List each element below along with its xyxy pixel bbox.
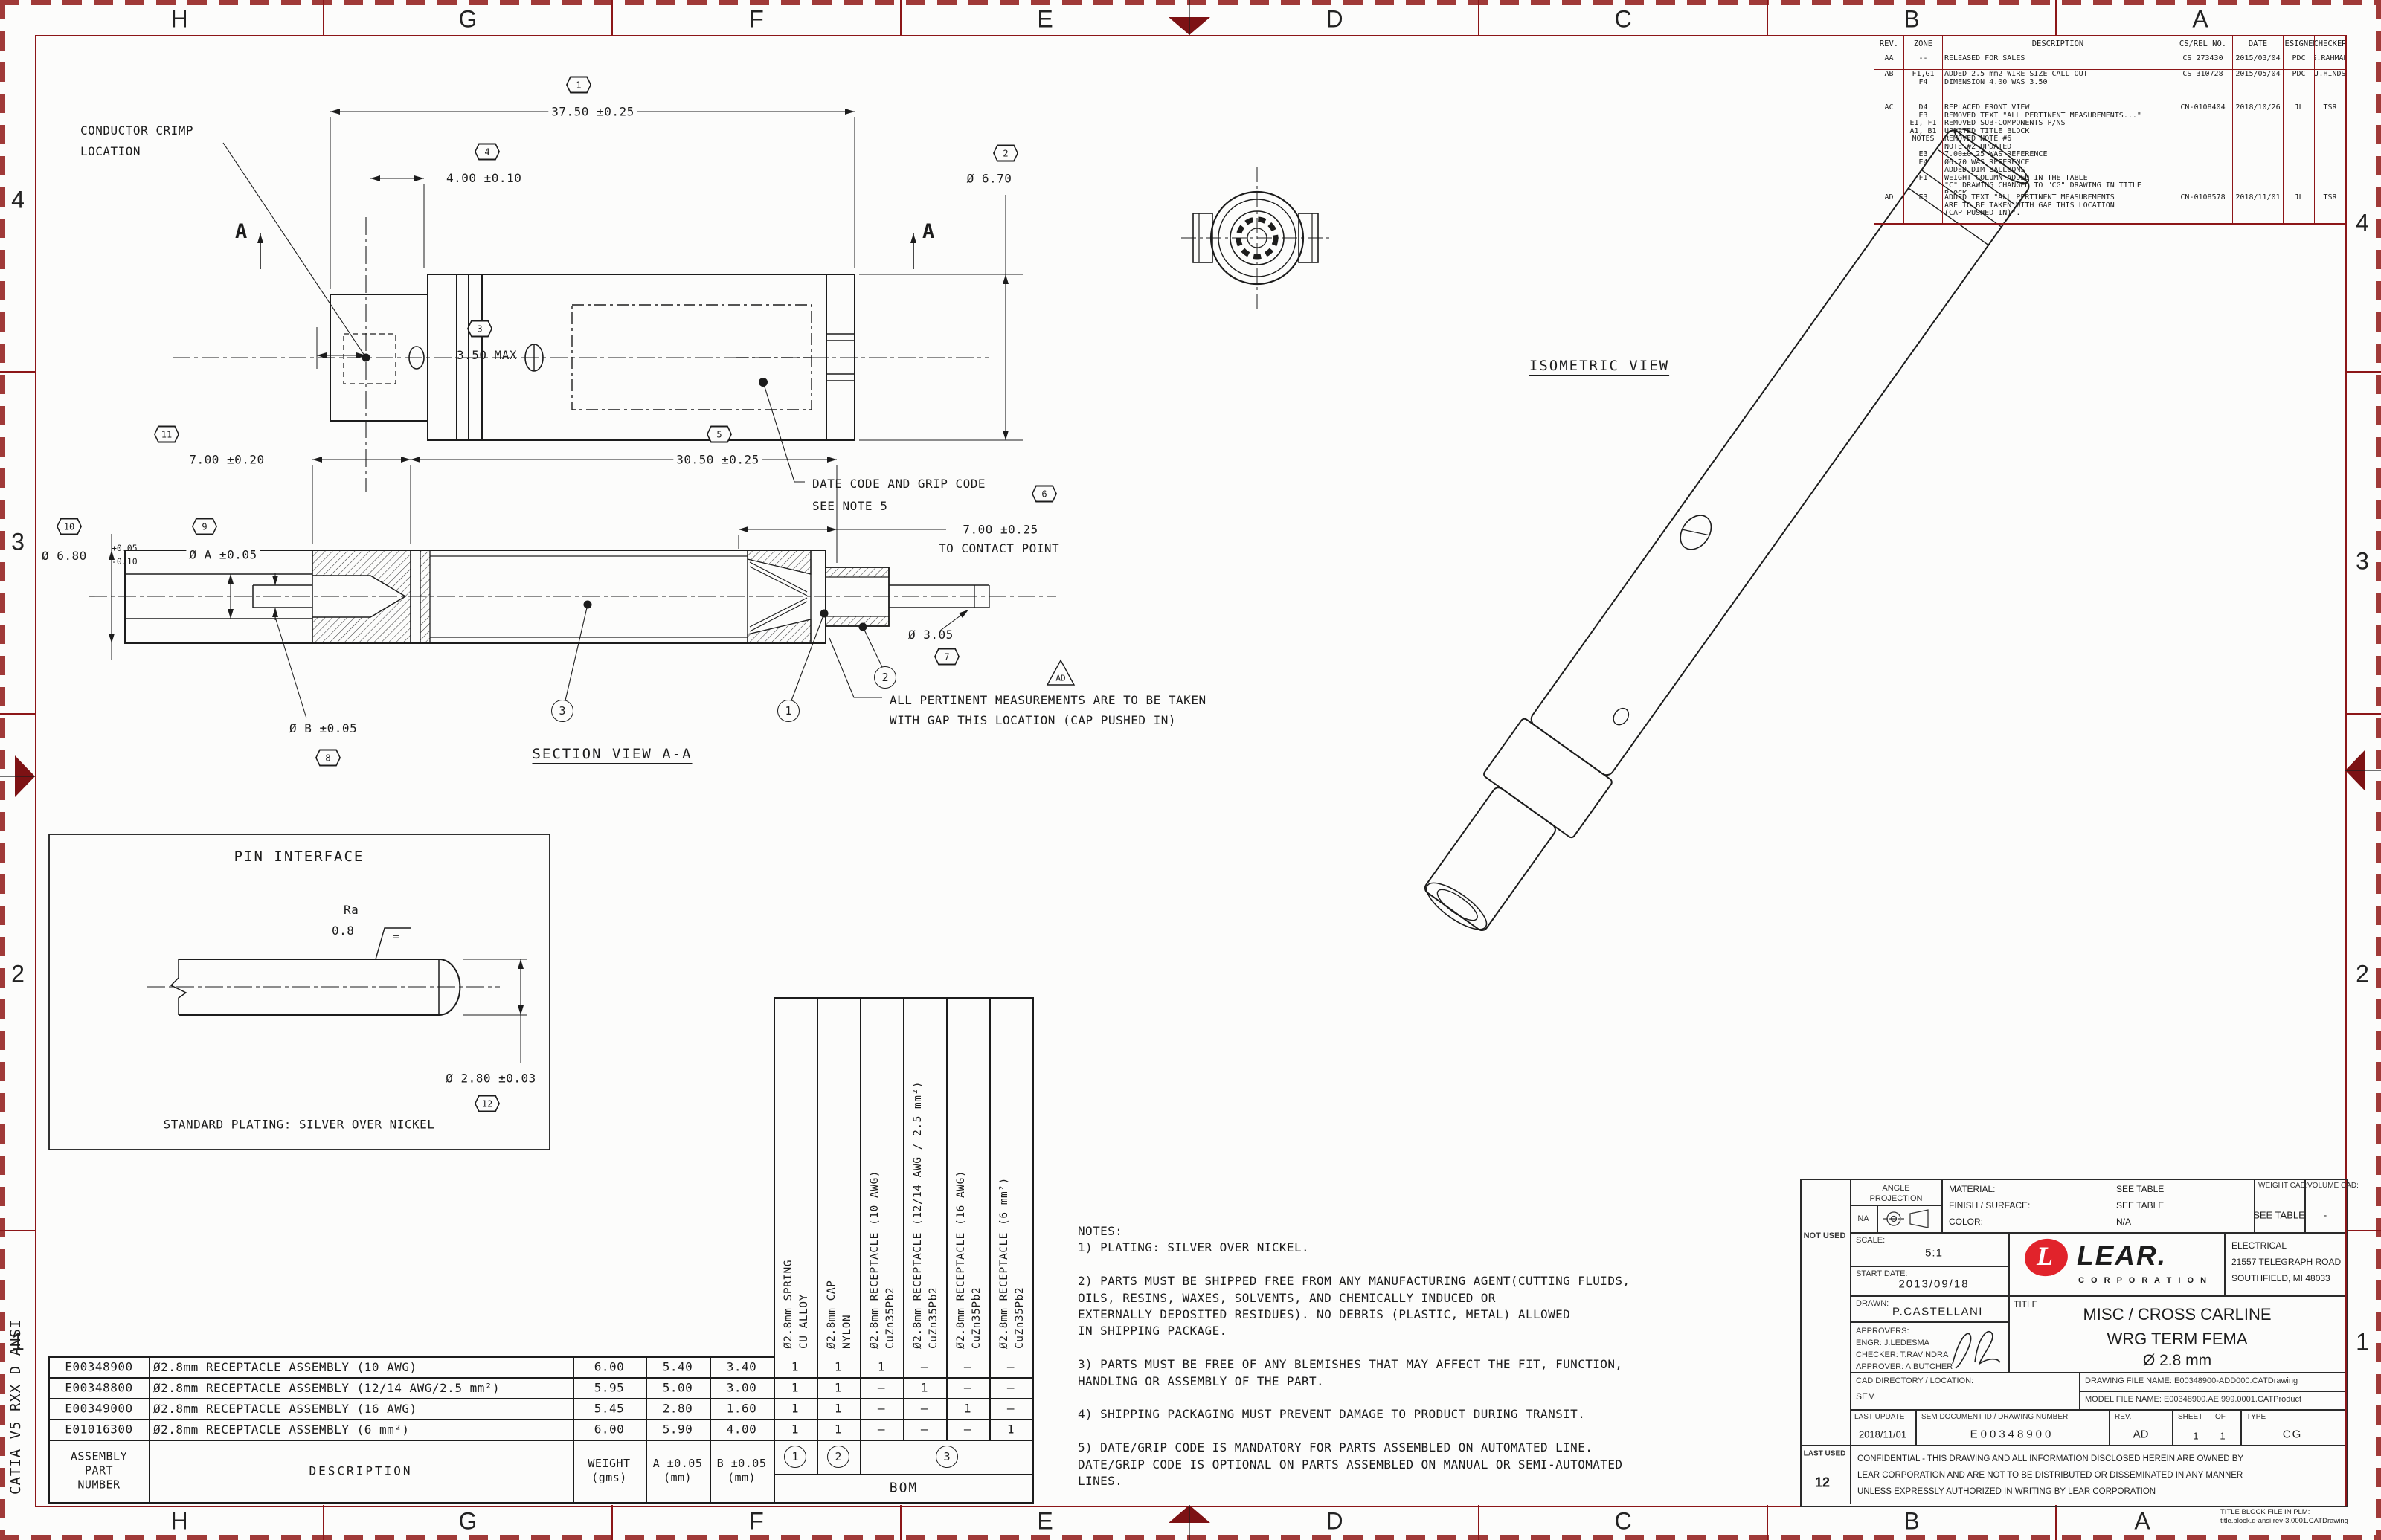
tb-line (1850, 1321, 2008, 1323)
sem-doc-id-label: SEM DOCUMENT ID / DRAWING NUMBER (1921, 1413, 2068, 1421)
bom-component-header-1: Ø2.8mm SPRING CU ALLOY (781, 1002, 815, 1349)
rev-cell: PDC (2284, 70, 2315, 103)
revision-table: REV. ZONE DESCRIPTION CS/REL NO. DATE DE… (1874, 35, 2347, 225)
rev-header: DATE (2233, 35, 2284, 54)
bom-part-desc: Ø2.8mm RECEPTACLE ASSEMBLY (6 mm²) (153, 1423, 410, 1437)
section-view-label: SECTION VIEW A-A (532, 746, 692, 762)
angle-na: NA (1857, 1214, 1869, 1223)
bom-line (48, 1502, 1034, 1504)
balloon-1: 1 (566, 77, 591, 94)
bom-line (817, 997, 818, 1474)
tb-line (1941, 1179, 1943, 1232)
isometric-view (1404, 116, 2043, 949)
lear-logo-l: L (2037, 1240, 2053, 1272)
tb-line (1850, 1266, 2008, 1267)
bom-balloon-3: 3 (936, 1446, 958, 1468)
item-balloon-2: 2 (874, 666, 896, 689)
tb-line (1850, 1295, 2345, 1297)
last-update-value: 2018/11/01 (1859, 1429, 1906, 1440)
bom-line (149, 1356, 150, 1504)
date-code-note: DATE CODE AND GRIP CODE SEE NOTE 5 (812, 473, 986, 518)
bom-line (860, 997, 861, 1474)
balloon-4: 4 (475, 144, 500, 161)
company-address: ELECTRICAL 21557 TELEGRAPH ROAD SOUTHFIE… (2231, 1237, 2341, 1286)
title-label: TITLE (2014, 1299, 2038, 1309)
bom-part-desc: Ø2.8mm RECEPTACLE ASSEMBLY (16 AWG) (153, 1402, 417, 1416)
bom-qty: – (921, 1402, 928, 1416)
weight-cad-label: WEIGHT CAD: (2258, 1182, 2307, 1190)
pertinent-note: ALL PERTINENT MEASUREMENTS ARE TO BE TAK… (890, 690, 1206, 730)
bom-qty: – (1007, 1360, 1015, 1374)
volume-cad-label: VOLUME CAD: (2307, 1182, 2359, 1190)
tb-line (1850, 1179, 1851, 1504)
weight-cad-value: SEE TABLE (2253, 1210, 2305, 1221)
bom-qty: 1 (921, 1381, 928, 1395)
sem-doc-id-value: E00348900 (1970, 1428, 2054, 1441)
drawing-title-line2: WRG TERM FEMA (2107, 1330, 2247, 1349)
rev-header: DESIGNER (2284, 35, 2315, 54)
scale-label: SCALE: (1856, 1236, 1885, 1245)
bom-component-header-3: Ø2.8mm RECEPTACLE (10 AWG) CuZn35Pb2 (867, 1002, 902, 1349)
balloon-12: 12 (475, 1095, 500, 1112)
rev-cell: E3 (1904, 193, 1943, 224)
dim-6-80: Ø 6.80 (39, 549, 90, 563)
tb-line (2172, 1409, 2173, 1445)
bom-weight: 5.95 (594, 1381, 625, 1395)
tb-line (1800, 1445, 2345, 1446)
angle-label-2: PROJECTION (1870, 1194, 1923, 1203)
color-label: COLOR: (1949, 1217, 1983, 1227)
pin-interface-view (49, 834, 550, 1150)
rev-cell: TSR (2315, 193, 2346, 224)
bom-dim-a: 2.80 (663, 1402, 693, 1416)
bom-line (48, 1356, 50, 1504)
sheet-label: SHEET (2178, 1413, 2202, 1421)
rev-header: CHECKER (2315, 35, 2346, 54)
bom-line (946, 997, 948, 1440)
start-date-value: 2013/09/18 (1898, 1278, 1969, 1291)
bom-line (48, 1398, 1034, 1399)
bom-part-number: E00348800 (65, 1381, 132, 1395)
dim-3-05: Ø 3.05 (908, 628, 954, 642)
rev-cell: CN-0108578 (2173, 193, 2233, 224)
finish-label: FINISH / SURFACE: (1949, 1200, 2030, 1211)
rev-header: REV. (1874, 35, 1904, 54)
rev-cell: 2018/10/26 (2233, 103, 2284, 193)
rev-cell: 2015/03/04 (2233, 54, 2284, 70)
rev-cell: TSR (2315, 103, 2346, 193)
approver-signature (1945, 1325, 2008, 1370)
rev-cell: AB (1874, 70, 1904, 103)
bom-a-header: A ±0.05 (mm) (653, 1457, 703, 1485)
rev-cell: S.RAHMAN (2315, 54, 2346, 70)
bom-qty: – (964, 1423, 971, 1437)
tb-line (1877, 1205, 1878, 1232)
dim-30-50: 30.50 ±0.25 (673, 453, 762, 467)
bom-dim-a: 5.40 (663, 1360, 693, 1374)
approvers-block: APPROVERS: ENGR: J.LEDESMA CHECKER: T.RA… (1856, 1325, 1953, 1373)
dim-6-70: Ø 6.70 (964, 172, 1015, 186)
tb-line (2240, 1409, 2242, 1445)
dim-3-50: 3.50 MAX (457, 348, 517, 362)
rev-cell: -- (1904, 54, 1943, 70)
bom-qty: – (964, 1360, 971, 1374)
dim-b: Ø B ±0.05 (289, 721, 357, 735)
of-value: 1 (2220, 1431, 2225, 1442)
tb-line (2008, 1232, 2010, 1372)
bom-line (710, 1356, 711, 1504)
rev-cell: JL (2284, 193, 2315, 224)
rev-cell: ADDED TEXT "ALL PERTINENT MEASUREMENTS A… (1943, 193, 2173, 224)
bom-component-header-5: Ø2.8mm RECEPTACLE (16 AWG) CuZn35Pb2 (954, 1002, 988, 1349)
bom-line (989, 997, 991, 1440)
rev-cell: D4 E3 E1, F1 A1, B1 NOTES E3 E4 F1 (1904, 103, 1943, 193)
drawn-label: DRAWN: (1856, 1299, 1889, 1308)
item-balloon-1: 1 (777, 700, 800, 722)
bom-line (774, 1474, 1034, 1475)
dim-37-50: 37.50 ±0.25 (548, 105, 637, 119)
bom-qty: – (1007, 1402, 1015, 1416)
ra-equals: = (393, 930, 400, 944)
bom-desc-header: DESCRIPTION (309, 1464, 413, 1478)
bom-qty: – (878, 1402, 885, 1416)
angle-label-1: ANGLE (1882, 1184, 1909, 1193)
balloon-9: 9 (192, 518, 217, 535)
rev-cell: AD (1874, 193, 1904, 224)
drawing-file-name: DRAWING FILE NAME: E00348900-ADD000.CATD… (2085, 1376, 2298, 1385)
bom-dim-b: 1.60 (727, 1402, 757, 1416)
bom-qty: – (921, 1423, 928, 1437)
bom-weight-header: WEIGHT (gms) (588, 1457, 630, 1485)
bom-balloon-1: 1 (784, 1446, 806, 1468)
bom-qty: 1 (791, 1360, 799, 1374)
front-view (1181, 167, 1333, 309)
bom-qty: 1 (835, 1402, 842, 1416)
balloon-6: 6 (1032, 486, 1057, 503)
rev-cell: F1,G1 F4 (1904, 70, 1943, 103)
bom-dim-b: 4.00 (727, 1423, 757, 1437)
dim-6-80-tol-lower: -0.10 (112, 556, 138, 567)
bom-dim-a: 5.00 (663, 1381, 693, 1395)
section-arrow-label-right: A (922, 220, 934, 243)
rev-cell: CS 310728 (2173, 70, 2233, 103)
bom-qty: 1 (835, 1360, 842, 1374)
to-contact-point-label: TO CONTACT POINT (939, 541, 1059, 555)
tb-line (1850, 1409, 2345, 1411)
tb-line (1850, 1232, 2345, 1234)
notes-block: NOTES: 1) PLATING: SILVER OVER NICKEL. 2… (1078, 1223, 1630, 1490)
bom-label: BOM (890, 1481, 919, 1496)
isometric-view-label: ISOMETRIC VIEW (1529, 358, 1669, 374)
conductor-crimp-note: CONDUCTOR CRIMP LOCATION (80, 120, 193, 162)
bom-qty: 1 (835, 1381, 842, 1395)
finish-value: SEE TABLE (2116, 1200, 2164, 1211)
bom-dim-a: 5.90 (663, 1423, 693, 1437)
start-date-label: START DATE: (1856, 1269, 1907, 1278)
of-label: OF (2215, 1413, 2226, 1421)
material-label: MATERIAL: (1949, 1184, 1995, 1194)
plm-title-block-note: TITLE BLOCK FILE IN PLM: title.block.d-a… (2220, 1508, 2348, 1526)
bom-part-desc: Ø2.8mm RECEPTACLE ASSEMBLY (12/14 AWG/2.… (153, 1381, 500, 1395)
bom-qty: – (921, 1360, 928, 1374)
last-update-label: LAST UPDATE (1854, 1413, 1904, 1421)
volume-cad-value: - (2324, 1210, 2327, 1221)
bom-part-header: ASSEMBLY PART NUMBER (71, 1450, 127, 1492)
bom-weight: 6.00 (594, 1423, 625, 1437)
bom-balloon-2: 2 (827, 1446, 849, 1468)
rev-label: REV. (2115, 1413, 2131, 1421)
bom-qty: – (878, 1423, 885, 1437)
rev-cell: AA (1874, 54, 1904, 70)
rev-header: CS/REL NO. (2173, 35, 2233, 54)
rev-cell: CN-0108404 (2173, 103, 2233, 193)
bom-component-header-6: Ø2.8mm RECEPTACLE (6 mm²) CuZn35Pb2 (997, 1002, 1031, 1349)
bom-qty: 1 (791, 1423, 799, 1437)
balloon-2: 2 (993, 145, 1018, 162)
bom-line (48, 1377, 1034, 1379)
dim-7-00-contact: 7.00 ±0.25 (960, 523, 1041, 537)
bom-qty: 1 (964, 1402, 971, 1416)
scale-value: 5:1 (1925, 1247, 1943, 1260)
tb-line (2224, 1232, 2226, 1295)
bom-line (646, 1356, 647, 1504)
bom-weight: 5.45 (594, 1402, 625, 1416)
bom-qty: 1 (791, 1402, 799, 1416)
drawing-title-line3: Ø 2.8 mm (2143, 1352, 2211, 1370)
bom-qty: – (1007, 1381, 1015, 1395)
rev-cell: JL (2284, 103, 2315, 193)
type-label: TYPE (2246, 1413, 2266, 1421)
not-used-cell: NOT USED (1804, 1231, 1846, 1240)
tb-line (2254, 1179, 2255, 1232)
tb-line (1850, 1205, 1941, 1206)
balloon-11: 11 (154, 426, 179, 443)
tb-line (2079, 1391, 2345, 1392)
dim-2-80: Ø 2.80 ±0.03 (446, 1072, 536, 1086)
dim-7-00-cap: 7.00 ±0.20 (186, 453, 267, 467)
model-file-name: MODEL FILE NAME: E00348900.AE.999.0001.C… (2085, 1395, 2301, 1404)
ra-label: Ra (344, 903, 359, 917)
bom-component-header-2: Ø2.8mm CAP NYLON (824, 1002, 858, 1349)
dim-6-80-tol-upper: +0.05 (112, 543, 138, 553)
bom-dim-b: 3.40 (727, 1360, 757, 1374)
dim-a: Ø A ±0.05 (186, 548, 260, 562)
rev-cell: ADDED 2.5 mm2 WIRE SIZE CALL OUT DIMENSI… (1943, 70, 2173, 103)
tb-line (2109, 1409, 2110, 1445)
bom-qty: 1 (1007, 1423, 1015, 1437)
bom-dim-b: 3.00 (727, 1381, 757, 1395)
bom-part-number: E00348900 (65, 1360, 132, 1374)
section-arrow-label-left: A (235, 220, 247, 243)
balloon-3: 3 (467, 320, 492, 338)
bom-component-header-4: Ø2.8mm RECEPTACLE (12/14 AWG / 2.5 mm²) … (910, 1002, 945, 1349)
drawing-sheet: H G F E D C B A H G F E D C B A 4 3 2 1 … (0, 0, 2381, 1540)
bom-qty: – (878, 1381, 885, 1395)
confidential-note: CONFIDENTIAL - THIS DRAWING AND ALL INFO… (1857, 1451, 2243, 1500)
rev-value: AD (2133, 1428, 2149, 1441)
lear-logo-name: LEAR. (2077, 1240, 2167, 1272)
pin-interface-label: PIN INTERFACE (234, 848, 364, 865)
bom-line (1032, 997, 1034, 1504)
bom-line (48, 1356, 774, 1358)
bom-line (903, 997, 904, 1440)
lear-logo-sub: C O R P O R A T I O N (2078, 1276, 2208, 1285)
sheet-value: 1 (2193, 1431, 2198, 1442)
balloon-5: 5 (707, 426, 732, 443)
rev-cell: J.HINDS (2315, 70, 2346, 103)
drawing-title-line1: MISC / CROSS CARLINE (2083, 1305, 2271, 1324)
bom-b-header: B ±0.05 (mm) (717, 1457, 767, 1485)
rev-cell: AC (1874, 103, 1904, 193)
drawn-value: P.CASTELLANI (1892, 1306, 1983, 1318)
item-balloon-3: 3 (551, 700, 573, 722)
bom-qty: – (964, 1381, 971, 1395)
ad-flag: AD (1055, 674, 1065, 683)
rev-header: DESCRIPTION (1943, 35, 2173, 54)
bom-qty: 1 (878, 1360, 885, 1374)
standard-plating-note: STANDARD PLATING: SILVER OVER NICKEL (164, 1118, 435, 1132)
rev-cell: 2015/05/04 (2233, 70, 2284, 103)
ra-value: 0.8 (332, 924, 354, 938)
bom-line (573, 1356, 574, 1504)
balloon-8: 8 (315, 750, 341, 767)
cad-directory-label: CAD DIRECTORY / LOCATION: (1856, 1376, 1973, 1385)
rev-cell: CS 273430 (2173, 54, 2233, 70)
cad-directory-value: SEM (1856, 1391, 1875, 1402)
dim-4-00: 4.00 ±0.10 (446, 171, 521, 185)
last-used-value: 12 (1815, 1475, 1830, 1491)
rev-cell: RELEASED FOR SALES (1943, 54, 2173, 70)
tb-line (1915, 1409, 1917, 1445)
bom-part-desc: Ø2.8mm RECEPTACLE ASSEMBLY (10 AWG) (153, 1360, 417, 1374)
bom-part-number: E00349000 (65, 1402, 132, 1416)
bom-qty: 1 (835, 1423, 842, 1437)
third-angle-projection-icon (1882, 1208, 1935, 1230)
rev-cell: 2018/11/01 (2233, 193, 2284, 224)
bom-line (48, 1419, 1034, 1420)
balloon-7: 7 (934, 648, 960, 666)
bom-line (774, 997, 775, 1504)
balloon-10: 10 (57, 518, 82, 535)
type-value: CG (2283, 1428, 2303, 1441)
bom-part-number: E01016300 (65, 1423, 132, 1437)
bom-weight: 6.00 (594, 1360, 625, 1374)
top-view (173, 112, 1023, 492)
material-value: SEE TABLE (2116, 1184, 2164, 1194)
bom-qty: 1 (791, 1381, 799, 1395)
color-value: N/A (2116, 1217, 2131, 1227)
bom-line (48, 1440, 1034, 1441)
last-used-label: LAST USED (1804, 1450, 1846, 1458)
rev-header: ZONE (1904, 35, 1943, 54)
rev-cell: PDC (2284, 54, 2315, 70)
rev-cell: REPLACED FRONT VIEW REMOVED TEXT "ALL PE… (1943, 103, 2173, 193)
